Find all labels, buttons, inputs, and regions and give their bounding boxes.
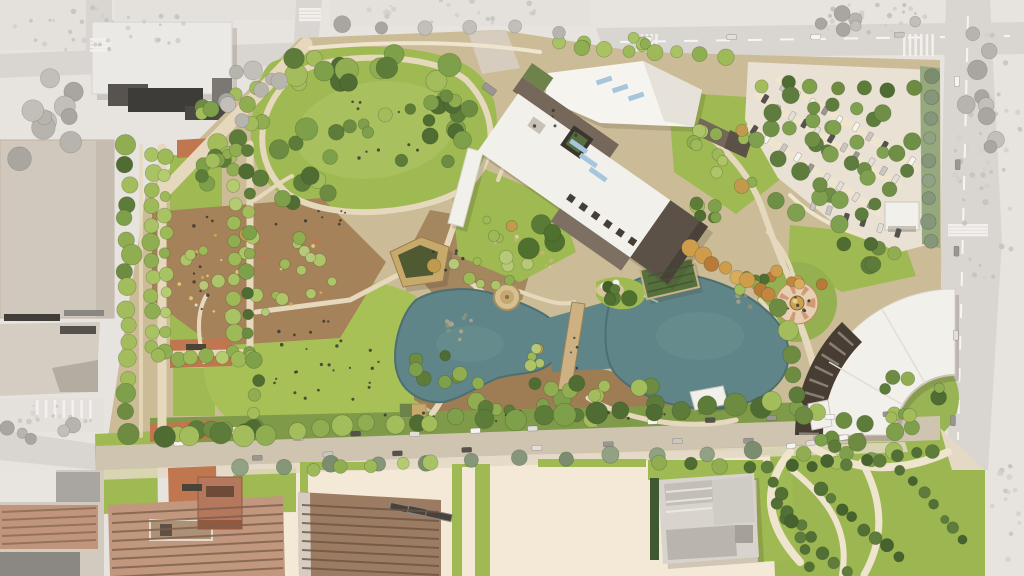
tree [792,162,810,180]
tree [782,121,796,135]
crosswalk-stripe [299,15,321,18]
speckle [848,3,851,6]
tree [719,262,732,275]
tree [142,233,160,251]
person-dot [332,369,334,371]
speckle [90,5,95,10]
tree [423,114,435,126]
bench [182,484,202,491]
tree [610,284,620,294]
person-dot [359,101,362,104]
tree [828,440,841,453]
speckle [490,16,495,21]
tree [199,348,214,363]
car [839,434,849,440]
car [351,431,361,436]
tree [248,407,260,419]
person-dot [273,382,276,385]
tree [785,367,801,383]
crosswalk-stripe [80,400,83,418]
tree [865,257,881,273]
tree [806,531,817,542]
tree [463,20,477,34]
tree [116,264,132,280]
speckle [866,30,871,35]
speckle [902,11,905,14]
tree [837,237,851,251]
tree [900,164,913,177]
speckle [991,275,995,279]
tree [912,447,923,458]
tree [154,426,176,448]
tree [306,289,316,299]
person-dot [416,149,419,152]
speckle [159,23,162,26]
person-dot [280,343,284,347]
speckle [366,7,371,12]
tree [199,281,208,290]
person-dot [794,296,796,298]
speckle [84,419,88,423]
speckle [189,296,193,300]
tree [910,16,921,27]
tree [941,515,949,523]
tree [185,249,196,260]
person-dot [576,367,578,369]
tree [744,461,756,473]
tree [981,43,997,59]
tree [889,145,905,161]
speckle [445,319,449,323]
tree [271,73,288,90]
speckle [1009,247,1014,252]
tree [340,74,358,92]
speckle [545,264,547,266]
crosswalk-stripe [71,400,74,418]
tree [534,405,554,425]
tree [844,156,859,171]
tree [475,410,494,429]
person-dot [338,223,341,226]
person-dot [796,304,799,307]
tree [464,453,478,467]
person-dot [407,143,410,146]
crosswalk-stripe [948,227,988,230]
speckle [744,294,748,298]
tree [704,257,719,272]
tree [850,135,864,149]
plaza-strip-walk [462,467,475,576]
tree [505,410,526,431]
person-dot [309,331,312,334]
tree [116,383,136,403]
speckle [533,9,536,12]
tree [796,446,811,461]
tree [442,155,455,168]
tree [815,18,827,30]
tree [449,259,460,270]
tree [244,61,263,80]
tree [768,477,779,488]
tree [332,415,353,436]
speckle [1013,488,1018,493]
crosswalk-stripe [931,34,934,56]
tree [144,198,159,213]
tree [559,452,573,466]
tree [161,287,172,298]
tree [631,379,648,396]
tree [826,98,840,112]
speckle [36,418,40,422]
tree [769,299,787,317]
tree [957,96,975,114]
tree [612,402,629,419]
car [705,417,715,422]
tree [736,124,748,136]
tree [239,264,255,280]
speckle [491,21,495,25]
speckle [736,300,740,304]
speckle [181,21,186,26]
speckle [984,184,989,189]
tree [855,208,868,221]
speckle [68,30,72,34]
tree [320,185,337,202]
tree [453,366,468,381]
tree [623,46,635,58]
tree [599,380,611,392]
person-dot [320,363,323,366]
tree [711,166,723,178]
person-dot [576,346,579,349]
tree [816,547,829,560]
speckle [830,19,835,24]
tree [894,552,904,562]
tree [832,82,845,95]
tree [405,104,416,115]
speckle [827,28,830,31]
tree [276,459,291,474]
speckle [142,19,146,23]
tree [228,252,241,265]
tree [220,97,236,113]
person-dot [275,378,277,380]
speckle [314,239,318,243]
tree [216,351,229,364]
tree [768,192,785,209]
tree [775,487,788,500]
tree [596,41,612,57]
tree [553,26,566,39]
tree [511,450,527,466]
tree [569,375,585,391]
speckle [34,39,37,42]
speckle [875,3,880,8]
tree [280,259,290,269]
person-dot [570,351,572,353]
tree [826,493,836,503]
tree [323,150,338,165]
person-dot [377,361,379,363]
tree [821,454,834,467]
person-dot [568,135,570,137]
tree [886,370,900,384]
speckle [469,319,473,323]
tree [199,246,208,255]
tree [921,214,937,230]
tree [718,49,735,66]
speckle [108,47,111,50]
corner-roof [0,470,56,502]
car [954,76,959,86]
speckle [962,220,967,225]
tree [203,101,219,117]
corner-roof-gray [56,472,100,502]
tree [232,459,249,476]
person-dot [384,414,387,417]
tree [857,81,871,95]
speckle [175,38,180,43]
tree [785,515,799,529]
tree [789,387,805,403]
tree [269,140,289,160]
car [955,160,960,170]
person-dot [201,308,203,310]
tree [242,225,257,240]
tree [476,280,485,289]
car [410,431,420,436]
tree [816,279,827,290]
tree [289,423,306,440]
person-dot [371,367,374,370]
tree [836,23,850,37]
speckle [391,6,396,11]
tree [761,461,773,473]
person-dot [804,310,806,312]
tree [116,156,133,173]
speckle [1018,521,1022,525]
tree [301,167,319,185]
tree [602,446,619,463]
person-dot [206,294,209,297]
tree [312,419,330,437]
tree [934,383,944,393]
tree [235,114,249,128]
tree [293,232,306,245]
crosswalk-stripe [45,400,48,418]
speckle [26,419,32,425]
tree [447,408,464,425]
tree [831,191,848,208]
crosswalk-stripe [948,224,988,227]
tree [25,433,36,444]
speckle [458,338,462,342]
tree [929,499,939,509]
tree [646,404,663,421]
parking-kiosk[interactable] [885,202,919,230]
tree [409,362,423,376]
tree [375,22,387,34]
car [392,451,402,456]
tree [252,170,269,187]
crosswalk-stripe [299,8,321,11]
park-restroom-greenroof [400,404,412,417]
person-dot [317,210,319,212]
tree [588,389,601,402]
tree [734,179,749,194]
tree [440,90,453,103]
person-dot [574,134,577,137]
speckle [954,149,957,152]
person-dot [317,389,320,392]
speckle [51,414,55,418]
tree [700,447,715,462]
tree [438,375,451,388]
speckle [126,26,131,31]
tree [160,307,171,318]
person-dot [533,124,536,127]
church-building[interactable] [650,473,764,569]
car [811,34,821,39]
car [532,445,542,450]
tree [860,170,876,186]
speckle [29,19,33,23]
tree [831,215,849,233]
speckle [956,135,961,140]
tree [229,143,242,156]
aerial-rendering [0,0,1024,576]
tree [144,289,158,303]
tree [888,247,901,260]
tree [499,250,513,264]
speckle [979,132,982,135]
car [528,426,538,431]
tree [787,204,805,222]
tree [151,349,165,363]
speckle [969,258,972,261]
speckle [32,404,35,407]
speckle [748,304,753,309]
speckle [1002,168,1006,172]
speckle [990,504,994,508]
car [950,416,955,426]
speckle [214,234,217,237]
roof-slit [60,326,96,334]
tree [671,46,683,58]
tree [922,174,935,187]
tree [158,149,174,165]
person-dot [554,124,557,127]
tree [22,100,44,122]
speckle [447,329,451,333]
speckle [56,405,59,408]
tree [924,234,938,248]
tree [244,248,255,259]
tree [857,415,874,432]
tree [764,104,782,122]
church-tower [735,525,753,543]
speckle [967,146,970,149]
tree [869,198,881,210]
tree [424,95,439,110]
speckle [106,38,111,43]
tree [851,21,862,32]
tree [509,20,522,33]
speckle [1005,557,1010,562]
tree [253,375,265,387]
site-plan-svg [0,0,1024,576]
tree [518,238,539,259]
tree [958,535,967,544]
person-dot [552,115,554,117]
tree [836,504,848,516]
dome-fountain [790,296,804,310]
tree [710,212,721,223]
person-dot [357,156,360,159]
tree [882,182,897,197]
person-dot [432,250,435,253]
tree [652,455,667,470]
speckle [514,238,518,242]
tree [159,267,173,281]
speckle [1004,109,1008,113]
person-dot [398,111,400,113]
speckle [983,167,986,170]
tree [158,169,170,181]
roof-slit [64,310,104,316]
speckle [828,14,832,18]
speckle [970,172,976,178]
tree [364,460,377,473]
speckle [914,12,917,15]
plaza-green-strip [538,459,646,467]
speckle [213,310,216,313]
person-dot [306,348,308,350]
crosswalk-stripe [63,400,66,418]
tree [386,415,405,434]
tree [858,524,870,536]
tree [295,118,318,141]
tree [814,482,828,496]
tree [226,291,241,306]
tree [891,450,903,462]
tree [901,372,915,386]
person-dot [455,252,458,255]
tree [146,270,160,284]
tree [822,146,838,162]
speckle [462,316,466,320]
crosswalk-stripe [948,234,988,237]
person-dot [322,320,325,323]
tree [255,425,276,446]
tree [244,188,255,199]
tree [121,318,136,333]
tree [241,145,253,157]
speckle [383,10,388,15]
water-highlight [656,312,744,360]
tree [848,433,866,451]
tree [880,383,891,394]
tree [454,131,472,149]
speckle [459,329,463,333]
tree [483,216,491,224]
tree [145,148,159,162]
tree [242,328,253,339]
speckle [127,16,130,19]
tree [628,32,639,43]
person-dot [368,386,371,389]
car [470,428,480,433]
